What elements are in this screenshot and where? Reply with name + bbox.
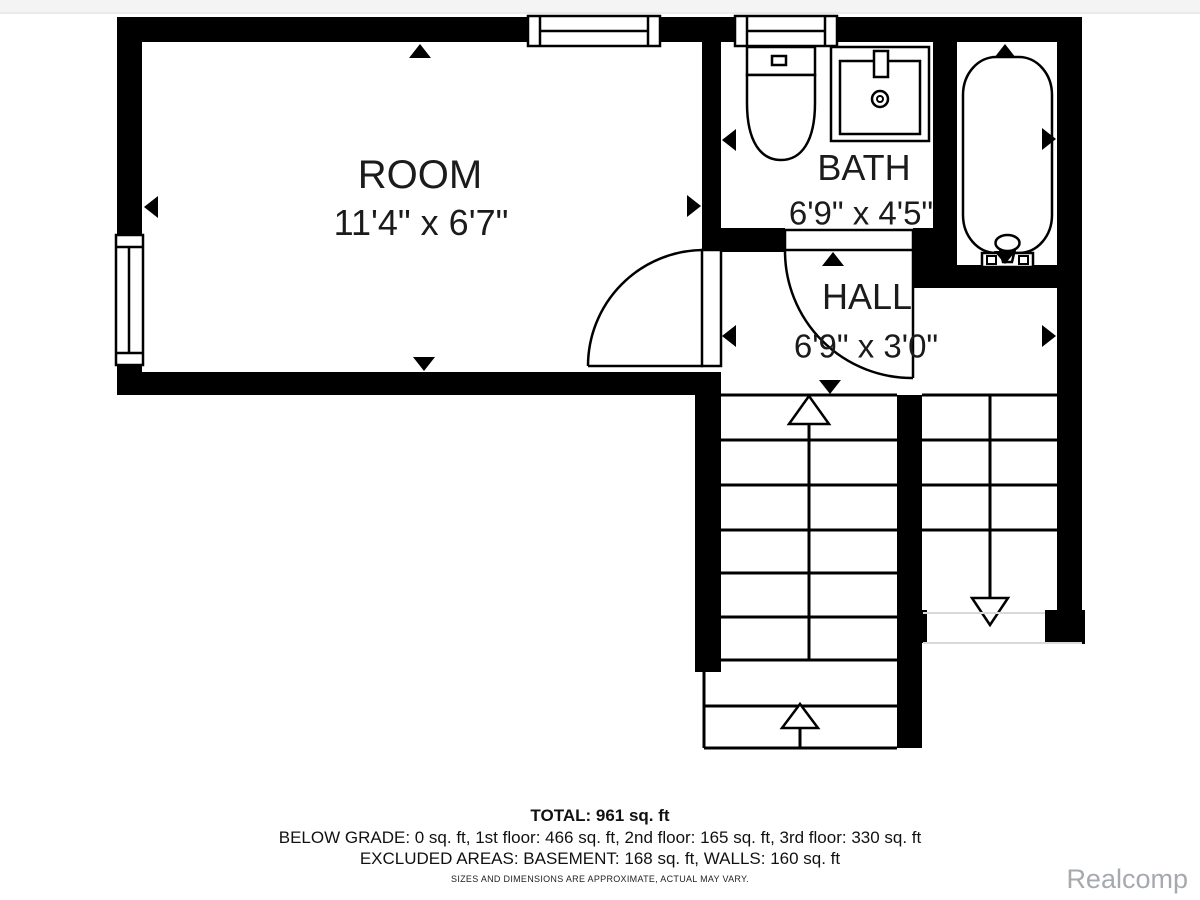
hall-dimensions: 6'9" x 3'0" xyxy=(794,330,938,363)
realcomp-watermark: Realcomp xyxy=(1066,864,1188,895)
wall-room-bath-divider xyxy=(702,17,721,250)
floorplan-page: ROOM 11'4" x 6'7" BATH 6'9" x 4'5" HALL … xyxy=(0,0,1200,900)
marker-hall-top xyxy=(822,252,844,266)
wall-right xyxy=(1057,17,1082,613)
wall-stairs-middle-foot xyxy=(897,610,927,643)
marker-tub-top xyxy=(994,44,1016,58)
marker-room-bottom xyxy=(413,357,435,371)
tub-faucet-head xyxy=(996,235,1020,251)
marker-hall-left xyxy=(722,325,736,347)
marker-room-right xyxy=(687,195,701,217)
door-opening-room-hall xyxy=(702,250,721,366)
room-dimensions: 11'4" x 6'7" xyxy=(334,205,509,241)
room-label: ROOM xyxy=(358,155,482,195)
marker-hall-bottom xyxy=(819,380,841,394)
stairs-lower-up-arrow xyxy=(782,704,818,728)
wall-bath-tub-divider xyxy=(933,17,957,232)
stairs-down-arrow xyxy=(972,598,1008,625)
toilet-fixture xyxy=(747,47,815,160)
sink-fixture xyxy=(831,47,929,141)
window-bath-top xyxy=(735,16,837,46)
stairs-up-arrow xyxy=(789,396,829,424)
marker-room-top xyxy=(409,44,431,58)
footer-total-area: TOTAL: 961 sq. ft xyxy=(0,806,1200,826)
floorplan-drawing xyxy=(0,0,1200,900)
hall-label: HALL xyxy=(822,279,912,315)
footer-excluded-areas: EXCLUDED AREAS: BASEMENT: 168 sq. ft, WA… xyxy=(0,849,1200,869)
page-top-strip xyxy=(0,0,1200,12)
footer-disclaimer: SIZES AND DIMENSIONS ARE APPROXIMATE, AC… xyxy=(0,874,1200,884)
door-opening-bath-hall xyxy=(785,230,913,250)
bath-label: BATH xyxy=(817,150,910,186)
stairs-lower-flight xyxy=(704,660,897,748)
door-room-hall xyxy=(588,250,703,366)
marker-hall-right xyxy=(1042,325,1056,347)
window-room-top xyxy=(528,16,660,46)
footer-floor-breakdown: BELOW GRADE: 0 sq. ft, 1st floor: 466 sq… xyxy=(0,828,1200,848)
stairs-left-flight xyxy=(703,395,897,660)
wall-stairs-left xyxy=(695,372,721,672)
wall-room-bottom xyxy=(117,372,720,395)
wall-stairs-middle xyxy=(897,395,922,748)
marker-bath-left xyxy=(722,129,736,151)
wall-right-foot xyxy=(1045,610,1085,644)
wall-bath-bottom-left xyxy=(702,228,785,252)
marker-room-left xyxy=(144,196,158,218)
window-room-left xyxy=(116,235,143,365)
walls xyxy=(117,17,1085,748)
bath-dimensions: 6'9" x 4'5" xyxy=(789,197,933,230)
bathtub-fixture xyxy=(963,57,1052,267)
